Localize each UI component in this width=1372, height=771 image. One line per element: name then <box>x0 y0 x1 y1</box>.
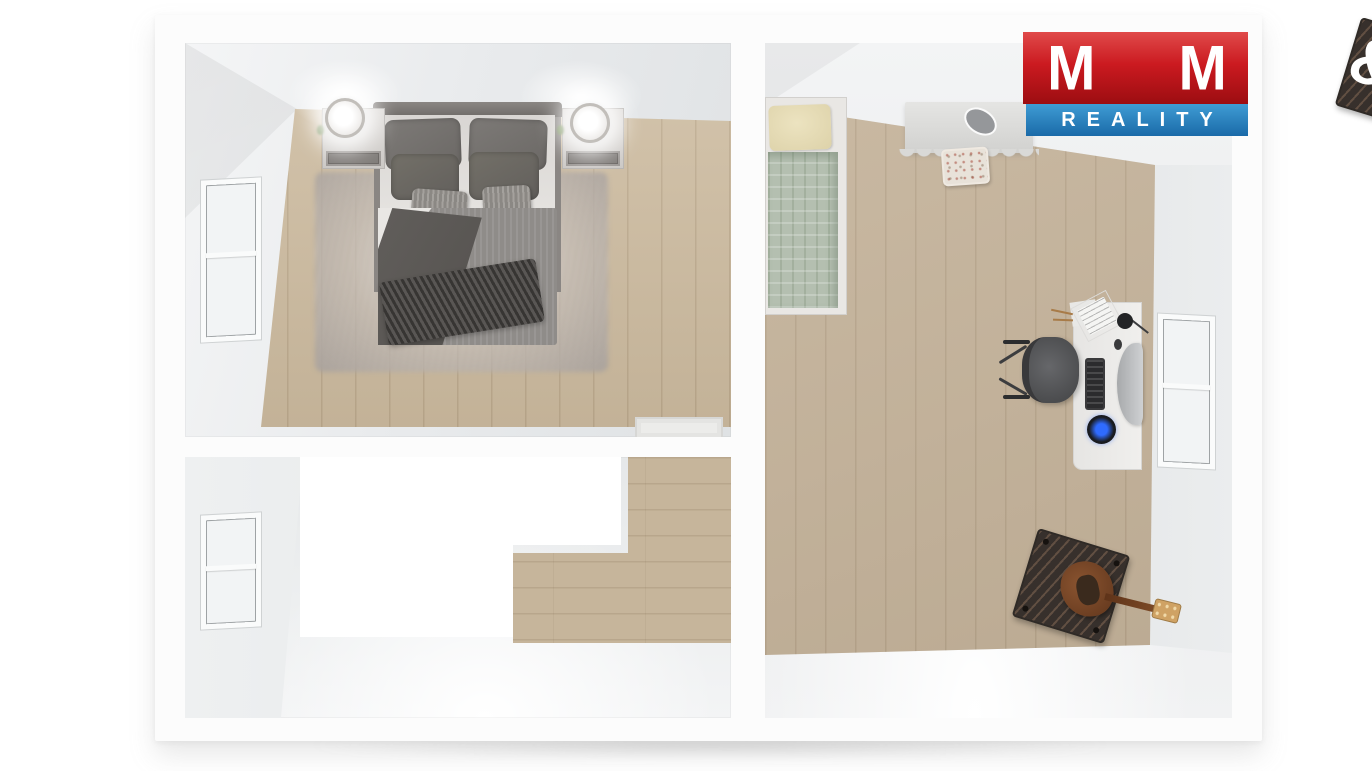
stairroom-window <box>201 512 261 629</box>
table-lamp-right <box>570 103 610 143</box>
vanity-stool <box>941 146 990 186</box>
logo-m-right: M <box>1179 32 1224 104</box>
mm-reality-logo-red: M & M <box>1023 32 1248 104</box>
mouse <box>1114 339 1122 350</box>
office-chair <box>1022 337 1079 403</box>
logo-m-left: M <box>1047 32 1092 104</box>
room-right <box>765 43 1232 718</box>
amp-knob-1 <box>1042 538 1049 545</box>
plant-left <box>317 125 324 135</box>
amp-knob-3 <box>1022 605 1029 612</box>
logo-ampersand: & <box>1334 17 1372 133</box>
plant-right <box>557 125 564 135</box>
stairroom-window-sash <box>206 518 256 625</box>
mm-reality-logo-blue: REALITY <box>1026 104 1248 136</box>
chair-armrest-top <box>1003 340 1030 344</box>
door-threshold <box>635 417 723 437</box>
room-bedroom <box>185 43 731 437</box>
single-bed-pillow <box>768 104 832 151</box>
vanity-mirror <box>959 102 1002 142</box>
floorplan-scene: M & M REALITY <box>0 0 1372 771</box>
electric-guitar <box>1061 555 1171 635</box>
keyboard <box>1085 358 1105 410</box>
vanity-table <box>905 102 1033 153</box>
rightroom-window <box>1158 314 1215 470</box>
bedroom-window <box>201 177 261 342</box>
single-bed-duvet <box>768 152 838 308</box>
led-speaker <box>1087 415 1116 444</box>
nightstand-left-drawer <box>326 151 381 166</box>
room-stair <box>185 457 731 718</box>
logo-reality-text: REALITY <box>1061 109 1224 132</box>
table-lamp-left <box>325 98 365 138</box>
double-bed <box>377 102 558 345</box>
chair-armrest-bottom <box>1003 395 1030 399</box>
rightroom-window-sash <box>1163 319 1210 464</box>
guitar-neck <box>1104 593 1156 612</box>
nightstand-right-drawer <box>566 151 620 166</box>
single-bed <box>765 97 847 315</box>
bedroom-window-sash <box>206 183 256 338</box>
desk-lamp <box>1117 313 1133 329</box>
